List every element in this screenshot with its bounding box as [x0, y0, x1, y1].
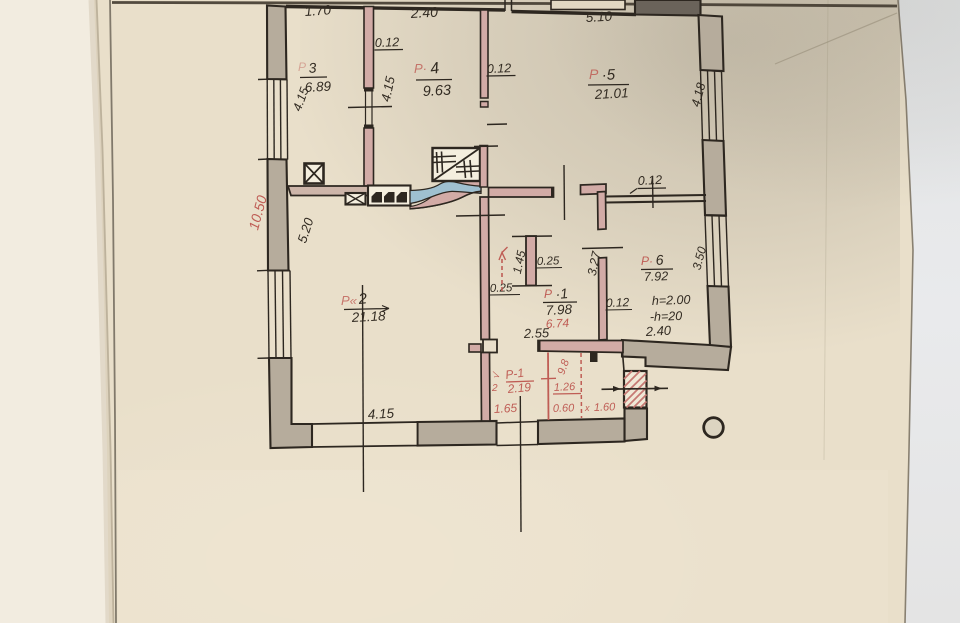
svg-text:0.12: 0.12 [487, 61, 512, 76]
svg-text:21.01: 21.01 [593, 85, 629, 102]
svg-text:h=2.00: h=2.00 [652, 293, 691, 308]
svg-text:1.65: 1.65 [493, 401, 517, 416]
svg-text:Р: Р [589, 66, 599, 82]
svg-text:1.26: 1.26 [554, 381, 577, 394]
svg-text:Р: Р [298, 60, 306, 74]
svg-text:21.18: 21.18 [350, 308, 386, 325]
svg-text:6.89: 6.89 [304, 79, 332, 95]
svg-text:0.12: 0.12 [375, 35, 400, 50]
svg-text:х: х [584, 403, 590, 413]
svg-text:7.92: 7.92 [644, 269, 669, 284]
svg-text:2: 2 [491, 383, 498, 394]
svg-text:1.60: 1.60 [594, 401, 617, 414]
svg-text:2.40: 2.40 [409, 4, 438, 21]
svg-text:Р·: Р· [641, 254, 653, 268]
svg-text:0.25: 0.25 [537, 255, 560, 268]
svg-text:Р-1: Р-1 [504, 366, 524, 382]
svg-text:2.55: 2.55 [523, 325, 551, 341]
svg-text:Р: Р [544, 287, 552, 301]
svg-text:9.63: 9.63 [422, 83, 451, 100]
svg-text:0.12: 0.12 [606, 295, 630, 310]
svg-text:5.10: 5.10 [585, 9, 613, 25]
svg-text:0.12: 0.12 [637, 173, 662, 188]
svg-text:4.15: 4.15 [367, 406, 395, 422]
svg-text:6: 6 [655, 251, 664, 268]
svg-text:Р·: Р· [414, 61, 427, 76]
svg-text:·1: ·1 [555, 285, 569, 302]
svg-text:-h=20: -h=20 [650, 309, 683, 324]
svg-text:6.74: 6.74 [545, 316, 569, 331]
svg-text:0.60: 0.60 [553, 402, 576, 415]
svg-text:Р«: Р« [341, 293, 358, 308]
svg-text:·5: ·5 [601, 66, 616, 84]
svg-text:3: 3 [308, 59, 317, 76]
svg-text:1.70: 1.70 [304, 2, 332, 19]
svg-text:2.40: 2.40 [644, 323, 672, 339]
